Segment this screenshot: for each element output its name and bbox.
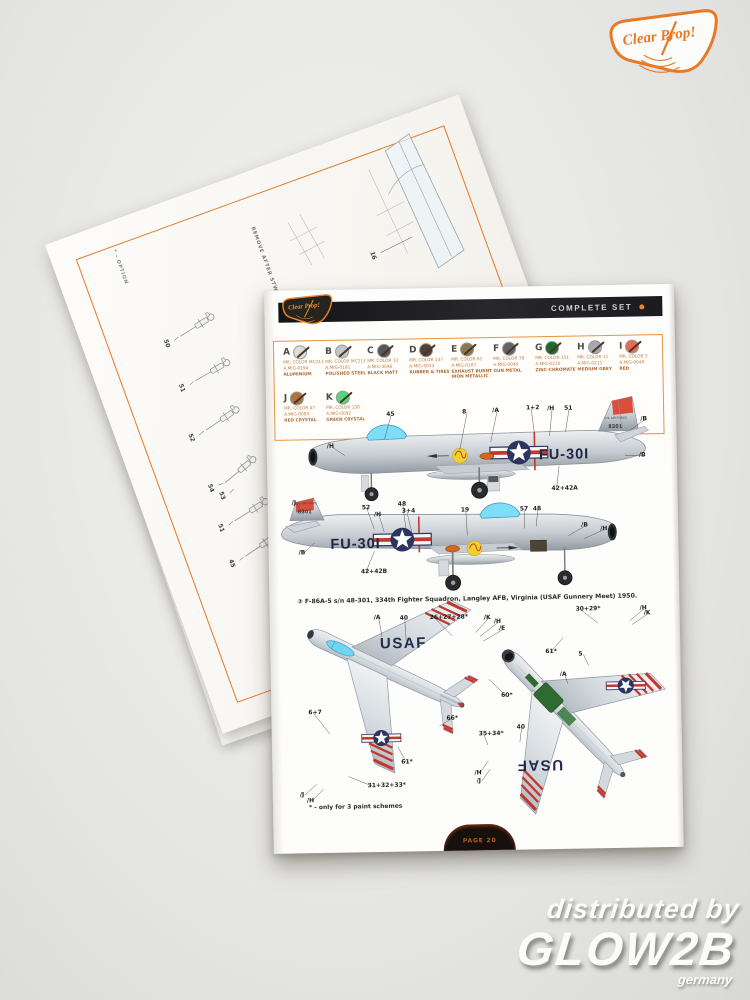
watermark-brand: GLOW2B [514, 925, 737, 972]
clearprop-badge-icon: Clear Prop! [280, 294, 337, 331]
aircraft-artwork: U.S. AIR FORCE 8301 FU-30I [264, 284, 684, 854]
instruction-page: COMPLETE SET Clear Prop! A MR. COLOR MC2… [264, 284, 684, 854]
svg-text:FU-30I: FU-30I [330, 536, 381, 553]
watermark: distributed by GLOW2B germany [513, 896, 741, 986]
profile-left-side: U.S. AIR FORCE 8301 FU-30I [307, 396, 649, 501]
svg-text:FU-30I: FU-30I [539, 446, 590, 463]
svg-text:U.S. AIR FORCE: U.S. AIR FORCE [296, 501, 317, 505]
profile-right-side: U.S. AIR FORCE 8301 FU-30I [281, 493, 618, 593]
clearprop-logo-icon: Clear Prop! [604, 7, 727, 109]
plan-bottom-view: USAF [439, 589, 684, 840]
page-number: PAGE 20 [463, 837, 497, 845]
plan-top-view: USAF [270, 552, 504, 789]
svg-text:USAF: USAF [516, 756, 563, 774]
svg-text:USAF: USAF [380, 635, 427, 653]
svg-text:8301: 8301 [608, 424, 622, 430]
svg-text:8301: 8301 [298, 509, 312, 515]
watermark-line1: distributed by [520, 896, 741, 923]
svg-text:U.S. AIR FORCE: U.S. AIR FORCE [604, 416, 627, 420]
photo-stage: * - OPTION REMOVE AFTER STW [0, 0, 750, 1000]
